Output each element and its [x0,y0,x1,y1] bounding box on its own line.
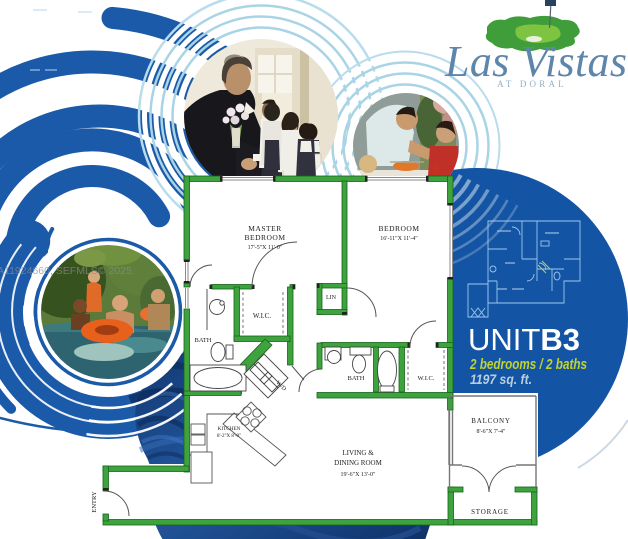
svg-text:BATH: BATH [348,375,365,382]
svg-text:LIVING &: LIVING & [342,449,374,457]
svg-text:KITCHEN: KITCHEN [218,426,241,432]
svg-text:8'-2"X 8'-0": 8'-2"X 8'-0" [217,434,241,439]
svg-text:W.I.C.: W.I.C. [253,312,271,320]
svg-text:2 bedrooms / 2 baths: 2 bedrooms / 2 baths [469,356,587,373]
svg-text:16'-11"X 11'-4": 16'-11"X 11'-4" [380,236,418,242]
svg-text:DINING ROOM: DINING ROOM [334,459,382,467]
svg-text:BEDROOM: BEDROOM [378,224,419,233]
svg-text:ENTRY: ENTRY [91,491,98,513]
svg-text:19'-6"X 13'-0": 19'-6"X 13'-0" [341,472,376,478]
svg-text:LIN: LIN [326,295,337,301]
svg-text:BALCONY: BALCONY [471,417,510,425]
svg-text:UNITB3: UNITB3 [468,322,580,357]
svg-text:BEDROOM: BEDROOM [244,233,285,242]
svg-text:MASTER: MASTER [248,224,281,233]
svg-text:STORAGE: STORAGE [471,508,509,516]
svg-text:A11924660, SEFMLS© 2025.: A11924660, SEFMLS© 2025. [0,265,135,277]
svg-text:8'-6"X 7'-4": 8'-6"X 7'-4" [477,429,506,435]
svg-text:BATH: BATH [195,337,212,344]
svg-text:AT DORAL: AT DORAL [497,79,567,89]
svg-text:W.I.C.: W.I.C. [418,375,435,382]
svg-text:17'-5"X 11'-0": 17'-5"X 11'-0" [248,245,283,251]
svg-text:1197 sq. ft.: 1197 sq. ft. [470,372,532,387]
